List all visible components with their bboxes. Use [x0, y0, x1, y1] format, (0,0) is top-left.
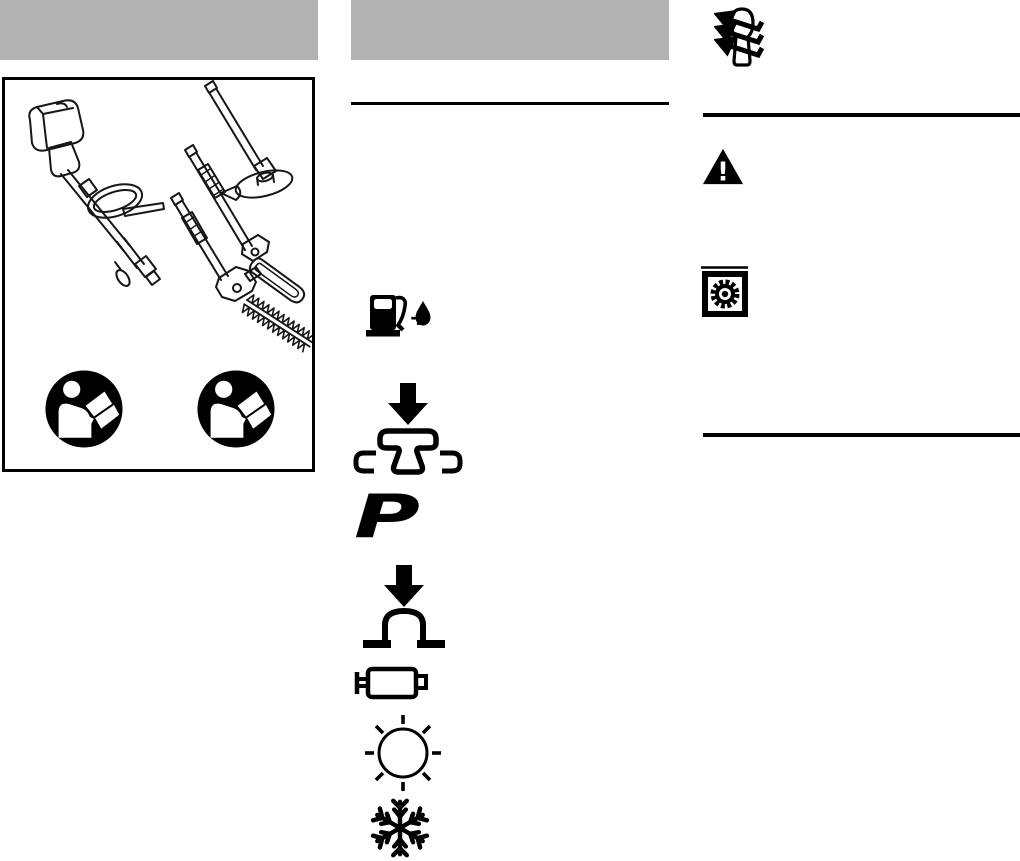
snowflake-winter-icon — [367, 796, 433, 860]
warning-triangle-icon: ! — [702, 147, 744, 187]
middle-column-rule — [351, 102, 669, 105]
sun-summer-icon — [363, 714, 443, 792]
engine-unit — [29, 100, 164, 288]
exclamation-glyph: ! — [717, 157, 729, 187]
right-column-rule-top — [703, 113, 1020, 117]
hedge-trimmer-attachment — [171, 193, 312, 353]
press-coupling-icon — [352, 383, 464, 475]
manual-page: + P — [0, 0, 1020, 861]
muffler-icon — [350, 666, 430, 704]
wrap-spiral-arrows-icon — [714, 3, 770, 67]
left-header-bar — [0, 0, 318, 60]
press-primer-bulb-icon — [355, 565, 453, 657]
right-column-rule-bottom — [703, 433, 1020, 437]
middle-header-bar — [351, 0, 669, 60]
gear-in-frame-icon — [701, 266, 749, 318]
read-manual-icon — [43, 368, 125, 450]
primer-pump-icon: P — [354, 488, 444, 546]
read-manual-icon — [195, 368, 277, 450]
pole-pruner-attachment — [185, 145, 307, 305]
brushcutter-attachment — [205, 81, 295, 203]
fuel-oil-mix-icon: + — [366, 293, 432, 345]
